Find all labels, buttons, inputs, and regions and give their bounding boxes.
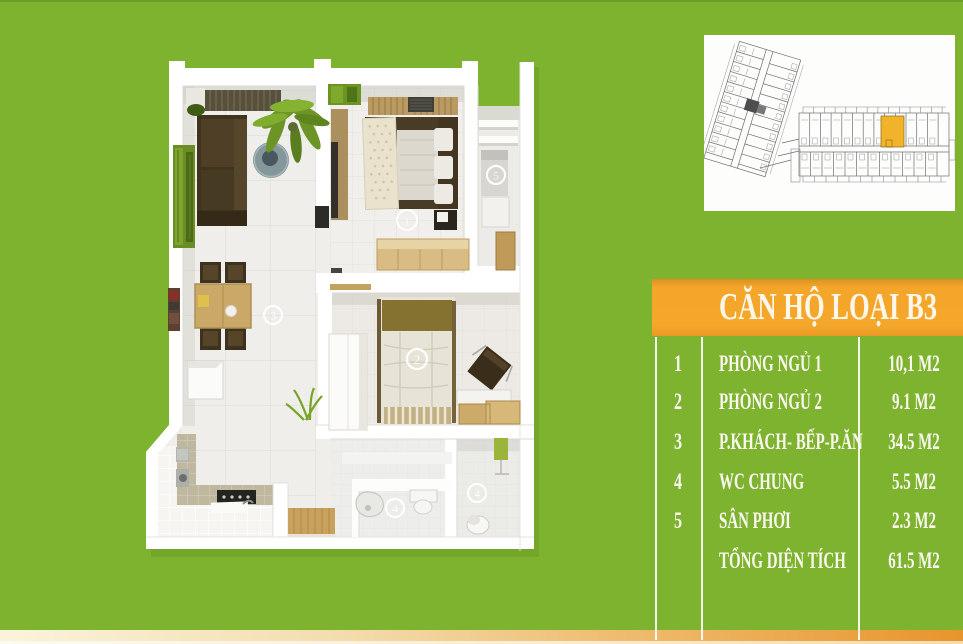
svg-text:4: 4	[392, 502, 398, 516]
svg-text:5: 5	[493, 169, 499, 183]
svg-text:2: 2	[414, 352, 421, 367]
svg-text:3: 3	[270, 309, 276, 323]
svg-text:1: 1	[404, 214, 410, 228]
svg-text:4: 4	[474, 487, 480, 501]
